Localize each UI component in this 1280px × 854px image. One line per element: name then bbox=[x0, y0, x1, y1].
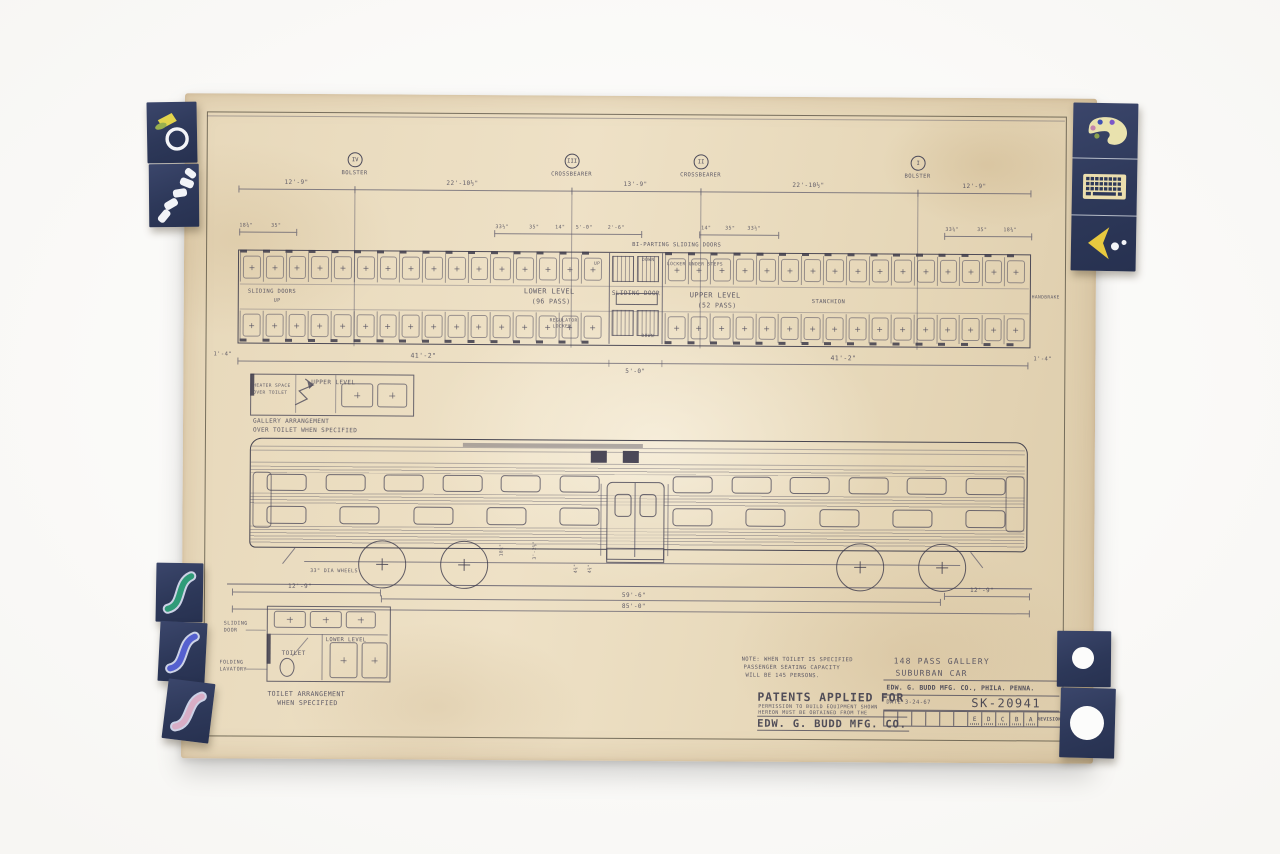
seat-cell bbox=[801, 256, 824, 285]
revision-cell-empty bbox=[898, 712, 912, 726]
magnet-tab bbox=[1057, 631, 1111, 687]
plan-upper-pass-label: (52 PASS) bbox=[698, 301, 737, 309]
sub-dim-label: 33½" bbox=[747, 226, 761, 232]
gallery-arrangement: HEATER SPACE OVER TOILET UPPER LEVEL GAL… bbox=[185, 93, 1097, 99]
magnet-tab bbox=[149, 164, 200, 227]
title-line-2: SUBURBAN CAR bbox=[895, 669, 967, 679]
section-marker-circle: II bbox=[694, 154, 709, 169]
plan-center-door-label: SLIDING DOOR bbox=[612, 290, 660, 298]
seat-cell bbox=[733, 256, 756, 285]
seat-cell bbox=[399, 254, 422, 283]
car-window bbox=[819, 509, 859, 527]
seat-cell bbox=[936, 315, 959, 344]
seat-cell bbox=[846, 314, 869, 343]
seat-cell bbox=[263, 253, 286, 282]
car-window bbox=[442, 475, 482, 492]
door-window bbox=[614, 494, 631, 517]
car-window bbox=[413, 507, 453, 525]
magnet-cell bbox=[1071, 215, 1137, 271]
patents-block: PATENTS APPLIED FOR PERMISSION TO BUILD … bbox=[185, 93, 1097, 99]
sub-dim-label: 35" bbox=[271, 223, 281, 229]
wheel bbox=[358, 540, 406, 588]
toilet-sliding-label-2: DOOR bbox=[224, 627, 238, 633]
leader-line bbox=[246, 630, 266, 631]
floor-plan: SLIDING DOORS UP LOWER LEVEL (96 PASS) S… bbox=[185, 93, 1097, 99]
stairs bbox=[637, 310, 659, 336]
footsteps-icon bbox=[149, 164, 200, 227]
toilet-level-label: LOWER LEVEL bbox=[326, 637, 367, 644]
magnet-cell bbox=[1073, 102, 1139, 158]
car-window bbox=[325, 474, 365, 491]
squiggle-icon bbox=[157, 621, 207, 683]
revision-cell-letter: E bbox=[968, 712, 982, 726]
doors-note-label: BI-PARTING SLIDING DOORS bbox=[632, 242, 721, 249]
sub-dim-label: 18¾" bbox=[239, 223, 253, 229]
door-window bbox=[639, 494, 656, 517]
magnet-tab bbox=[146, 102, 197, 164]
revision-cell-letter: C bbox=[996, 712, 1010, 726]
magnet-tab bbox=[155, 563, 203, 623]
seat-cell bbox=[422, 254, 445, 283]
magnet-strip bbox=[1071, 102, 1139, 271]
seat-cell bbox=[490, 254, 513, 283]
section-marker-circle: III bbox=[565, 154, 580, 169]
title-date: DATE 3-24-67 bbox=[886, 700, 931, 707]
car-window bbox=[746, 509, 786, 527]
plan-handbrake-label: HANDBRAKE bbox=[1032, 295, 1060, 301]
roof-vent bbox=[591, 451, 607, 463]
elev-rot-dim: 18¾" bbox=[500, 544, 506, 556]
seat-cell bbox=[422, 312, 445, 341]
plan-dim-left: 41'-2" bbox=[410, 352, 436, 360]
elev-dim-right: 12'-9" bbox=[970, 587, 994, 595]
seat-cell bbox=[823, 314, 846, 343]
toilet-wall bbox=[267, 634, 271, 664]
drawing-sheet: IVBOLSTERIIICROSSBEARERIICROSSBEARERIBOL… bbox=[181, 93, 1097, 764]
section-marker-label: CROSSBEARER bbox=[551, 171, 592, 178]
elev-rot-dim: 4¾" bbox=[574, 564, 580, 573]
wheel bbox=[440, 541, 488, 589]
section-marker-circle: IV bbox=[348, 152, 363, 167]
seat-cell bbox=[513, 312, 536, 341]
toilet-plan-seat bbox=[274, 611, 306, 628]
seat-cell bbox=[732, 314, 755, 343]
seat-cell bbox=[536, 254, 559, 283]
toilet-arrangement: SLIDING DOOR LOWER LEVEL TOILET FOLDING … bbox=[185, 93, 1097, 99]
wheel bbox=[918, 544, 966, 592]
squiggle-icon bbox=[155, 563, 203, 623]
dim-tick bbox=[700, 188, 701, 195]
toilet-sliding-label-1: SLIDING bbox=[224, 620, 248, 626]
palette-icon bbox=[1073, 102, 1139, 158]
seat-cell bbox=[846, 256, 869, 285]
toilet-plan-seat bbox=[346, 611, 376, 628]
wheel bbox=[836, 543, 884, 591]
seat-cell bbox=[376, 253, 399, 282]
seat-cell bbox=[891, 315, 914, 344]
seat-cell bbox=[913, 315, 936, 344]
seat-row bbox=[240, 311, 604, 342]
gallery-box-label-1: HEATER SPACE bbox=[253, 384, 290, 390]
revision-cell-empty bbox=[926, 712, 940, 726]
car-window bbox=[267, 474, 307, 491]
car-window bbox=[384, 474, 424, 491]
toilet-fixture bbox=[279, 658, 294, 677]
car-window bbox=[892, 510, 932, 528]
car-window bbox=[731, 477, 771, 494]
car-window bbox=[673, 476, 713, 493]
span-dim-label: 12'-9" bbox=[284, 179, 308, 187]
plan-up-label: UP bbox=[594, 262, 600, 268]
seat-cell bbox=[959, 315, 982, 344]
sub-dim-label: 14" bbox=[555, 224, 565, 230]
span-dim-label: 22'-10½" bbox=[792, 182, 824, 190]
car-window bbox=[907, 478, 947, 495]
upper-window-row bbox=[267, 474, 600, 491]
plan-stanchion-label: STANCHION bbox=[812, 299, 845, 306]
car-window bbox=[486, 507, 526, 525]
seat-cell bbox=[240, 311, 263, 340]
side-elevation: 33" DIA WHEELS 18¾" 3'-2⅜" 4¾" 4¾" 12'-9… bbox=[185, 93, 1097, 99]
note-line-3: WILL BE 145 PERSONS. bbox=[745, 673, 819, 680]
dim-tick bbox=[917, 190, 918, 197]
plan-left-door-up: UP bbox=[274, 298, 281, 304]
seat-cell bbox=[914, 257, 937, 286]
keyboard-icon bbox=[1072, 159, 1138, 215]
seat-cell bbox=[308, 311, 331, 340]
section-marker-label: CROSSBEARER bbox=[680, 172, 721, 179]
note-line-2: PASSENGER SEATING CAPACITY bbox=[744, 665, 841, 672]
sub-dim-label: 35" bbox=[977, 227, 987, 233]
toilet-plan-seat bbox=[329, 642, 357, 678]
revision-cell-empty bbox=[954, 712, 968, 726]
span-dim-label: 12'-9" bbox=[962, 183, 986, 191]
plan-dim-end-right: 1'-4" bbox=[1033, 356, 1052, 363]
seat-row bbox=[665, 255, 1027, 286]
seat-cell bbox=[778, 256, 801, 285]
plan-dim-center: 5'-0" bbox=[625, 368, 645, 376]
seat-cell bbox=[687, 313, 710, 342]
seat-cell bbox=[354, 253, 377, 282]
car-window bbox=[501, 475, 541, 492]
plan-dim-end-left: 1'-4" bbox=[213, 351, 232, 358]
seat-cell bbox=[823, 256, 846, 285]
section-marker-circle: I bbox=[911, 156, 926, 171]
car-window bbox=[965, 510, 1005, 528]
seat-cell bbox=[262, 311, 285, 340]
ring-icon bbox=[146, 102, 197, 164]
stairs bbox=[612, 310, 634, 336]
dim-tick bbox=[571, 188, 572, 195]
seat-cell bbox=[959, 257, 982, 286]
seat-cell bbox=[755, 314, 778, 343]
seat-cell bbox=[688, 255, 711, 284]
gallery-level-label: UPPER LEVEL bbox=[311, 379, 355, 387]
seat-cell bbox=[467, 312, 490, 341]
seat-cell bbox=[240, 253, 263, 282]
lower-window-row bbox=[266, 506, 599, 524]
elev-dim-overall: 85'-0" bbox=[622, 603, 646, 611]
car-window bbox=[790, 477, 830, 494]
revision-cell-empty bbox=[940, 712, 954, 726]
seat-cell bbox=[665, 313, 688, 342]
section-markers: IVBOLSTERIIICROSSBEARERIICROSSBEARERIBOL… bbox=[185, 93, 1097, 99]
toilet-plan-seat bbox=[310, 611, 342, 628]
toilet-folding-label-2: LAVATORY bbox=[220, 666, 247, 672]
dim-tick bbox=[608, 360, 609, 367]
revision-cell-letter: B bbox=[1010, 712, 1024, 726]
seat-cell bbox=[981, 315, 1004, 344]
seat-cell bbox=[331, 253, 354, 282]
end-door bbox=[1005, 476, 1024, 532]
cursor-arrow-icon bbox=[1071, 215, 1137, 271]
seat-cell bbox=[467, 254, 490, 283]
punched-hole-small-icon bbox=[1057, 631, 1111, 687]
plan-dim-right: 41'-2" bbox=[830, 354, 856, 362]
patents-title: PATENTS APPLIED FOR bbox=[757, 690, 904, 705]
wheels-label: 33" DIA WHEELS bbox=[310, 568, 358, 575]
seat-cell bbox=[444, 312, 467, 341]
dim-tick bbox=[661, 360, 662, 367]
seat-cell bbox=[800, 314, 823, 343]
plan-regulator-label-1: REGULATOR bbox=[550, 318, 578, 324]
gallery-caption-2: OVER TOILET WHEN SPECIFIED bbox=[253, 427, 357, 435]
elev-rot-dim: 4¾" bbox=[588, 564, 594, 573]
plan-upper-level-label: UPPER LEVEL bbox=[690, 291, 741, 300]
title-line-1: 148 PASS GALLERY bbox=[894, 657, 990, 668]
seat-cell bbox=[581, 313, 604, 342]
lower-window-row bbox=[672, 508, 1005, 526]
seat-cell bbox=[353, 311, 376, 340]
seat-cell bbox=[445, 254, 468, 283]
seat-cell bbox=[581, 255, 604, 284]
magnet-tab bbox=[157, 621, 207, 683]
car-window bbox=[966, 478, 1006, 495]
span-dim-label: 22'-10½" bbox=[446, 180, 478, 188]
seat-cell bbox=[710, 255, 733, 284]
toilet-plan-seat bbox=[361, 642, 387, 678]
elev-rot-dim: 3'-2⅜" bbox=[533, 541, 539, 560]
seat-cell bbox=[1004, 315, 1027, 344]
seat-cell bbox=[285, 253, 308, 282]
toilet-caption-1: TOILET ARRANGEMENT bbox=[267, 690, 345, 699]
magnet-tab bbox=[162, 678, 216, 743]
dim-tick bbox=[354, 186, 355, 193]
car-window bbox=[672, 508, 712, 526]
title-block: 148 PASS GALLERY SUBURBAN CAR EDW. G. BU… bbox=[185, 93, 1097, 99]
gallery-seat bbox=[377, 383, 407, 407]
gallery-caption-1: GALLERY ARRANGEMENT bbox=[253, 418, 329, 426]
seat-cell bbox=[308, 253, 331, 282]
seat-cell bbox=[665, 255, 688, 284]
seat-cell bbox=[331, 311, 354, 340]
seat-cell bbox=[285, 311, 308, 340]
magnet-cell bbox=[1072, 159, 1138, 215]
door-step bbox=[606, 548, 664, 563]
plan-locker-steps-label: LOCKER UNDER STEPS bbox=[667, 262, 723, 268]
seat-row bbox=[240, 253, 604, 284]
seat-row bbox=[665, 313, 1027, 344]
seat-cell bbox=[376, 311, 399, 340]
seat-cell bbox=[982, 257, 1005, 286]
sub-dim-label: 18¾" bbox=[1003, 227, 1017, 233]
plan-down-label: DOWN bbox=[642, 334, 654, 340]
seat-cell bbox=[936, 257, 959, 286]
plan-lower-level-label: LOWER LEVEL bbox=[524, 287, 575, 296]
seat-cell bbox=[868, 314, 891, 343]
revision-cell-empty bbox=[884, 712, 898, 726]
seat-cell bbox=[710, 313, 733, 342]
upper-window-row bbox=[673, 476, 1006, 493]
seat-cell bbox=[869, 256, 892, 285]
end-door bbox=[252, 472, 271, 528]
sub-dim-label: 35" bbox=[725, 226, 735, 232]
sub-dim-label: 33½" bbox=[495, 224, 509, 230]
note-line-1: NOTE: WHEN TOILET IS SPECIFIED bbox=[742, 657, 853, 665]
toilet-folding-label-1: FOLDING bbox=[220, 659, 244, 665]
title-company: EDW. G. BUDD MFG. CO., PHILA. PENNA. bbox=[886, 684, 1034, 693]
seat-cell bbox=[513, 254, 536, 283]
gallery-box-label-2: OVER TOILET bbox=[253, 391, 287, 397]
toilet-label: TOILET bbox=[282, 650, 306, 658]
seat-cell bbox=[490, 312, 513, 341]
revision-cell-letter: D bbox=[982, 712, 996, 726]
note-block: NOTE: WHEN TOILET IS SPECIFIED PASSENGER… bbox=[185, 93, 1097, 99]
seat-cell bbox=[778, 314, 801, 343]
car-window bbox=[266, 506, 306, 524]
plan-left-door-label: SLIDING DOORS bbox=[248, 289, 296, 296]
magnet-tab bbox=[1059, 687, 1116, 758]
seat-cell bbox=[1004, 257, 1027, 286]
gallery-seat bbox=[341, 383, 373, 407]
leader-line bbox=[246, 669, 268, 670]
sub-dim-label: 5'-0" bbox=[576, 225, 593, 231]
revision-label: REVISION bbox=[1038, 712, 1060, 726]
seat-cell bbox=[558, 255, 581, 284]
revision-cell-letter: A bbox=[1024, 712, 1038, 726]
punched-hole-large-icon bbox=[1059, 687, 1116, 758]
elev-dim-trucks: 59'-6" bbox=[622, 592, 646, 600]
plan-down-label: DOWN bbox=[642, 258, 654, 264]
plan-lower-pass-label: (96 PASS) bbox=[532, 297, 571, 305]
seat-cell bbox=[891, 257, 914, 286]
sub-dim-label: 33¼" bbox=[945, 227, 959, 233]
car-window bbox=[560, 476, 600, 493]
revision-strip: EDCBAREVISION bbox=[883, 710, 1061, 727]
seat-cell bbox=[755, 256, 778, 285]
section-marker-label: BOLSTER bbox=[342, 170, 368, 177]
car-window bbox=[848, 477, 888, 494]
section-marker-label: BOLSTER bbox=[905, 174, 931, 181]
sub-dim-label: 14" bbox=[701, 225, 711, 231]
car-window bbox=[340, 506, 380, 524]
plan-regulator-label-2: LOCKER bbox=[553, 324, 572, 330]
toilet-caption-2: WHEN SPECIFIED bbox=[277, 699, 337, 707]
sub-dim-label: 2'-6" bbox=[608, 225, 625, 231]
elev-dim-left: 12'-9" bbox=[288, 583, 312, 591]
squiggle-icon bbox=[162, 678, 216, 743]
roof-vent bbox=[623, 451, 639, 463]
seat-cell bbox=[399, 312, 422, 341]
stairs bbox=[612, 256, 634, 282]
revision-cell-empty bbox=[912, 712, 926, 726]
photo-backdrop: IVBOLSTERIIICROSSBEARERIICROSSBEARERIBOL… bbox=[0, 0, 1280, 854]
sub-dim-label: 35" bbox=[529, 224, 539, 230]
car-window bbox=[559, 508, 599, 526]
span-dim-label: 13'-9" bbox=[623, 181, 647, 189]
